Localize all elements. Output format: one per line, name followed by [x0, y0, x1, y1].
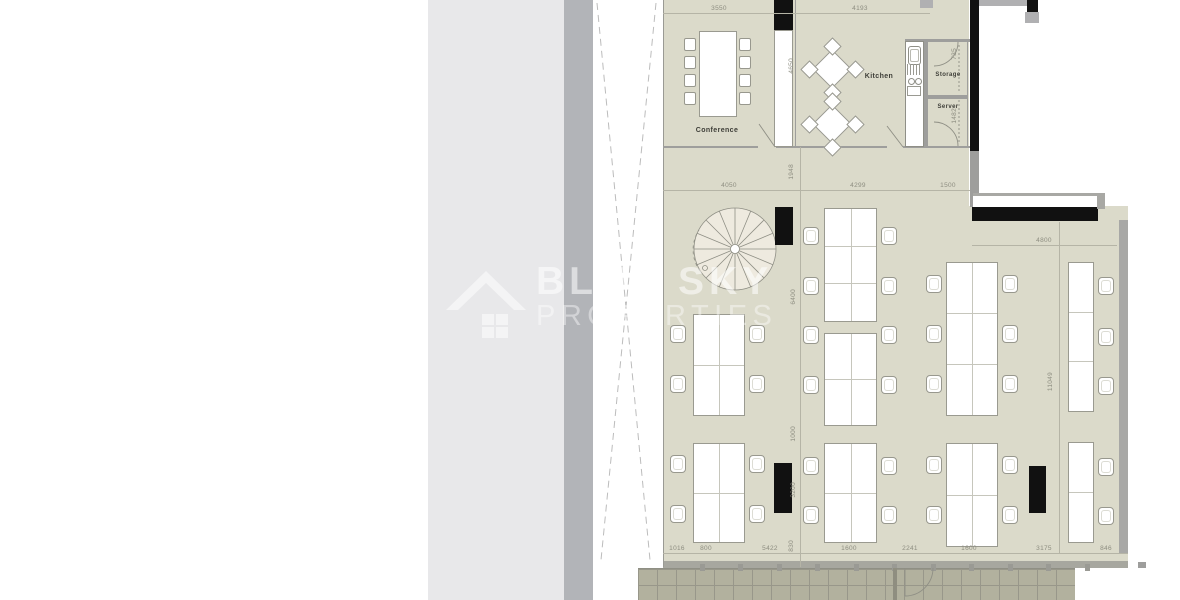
dimension-label: 1600 — [961, 545, 977, 552]
stove-burner-icon — [908, 78, 915, 85]
office-chair — [1098, 458, 1114, 476]
office-chair — [1098, 377, 1114, 395]
dimension-label: 11049 — [1047, 372, 1054, 391]
office-chair — [803, 457, 819, 475]
office-chair — [1002, 325, 1018, 343]
storage-room-label: Storage — [935, 72, 960, 78]
office-chair — [1098, 328, 1114, 346]
chair — [823, 37, 841, 55]
conference-kitchen-wall — [795, 0, 796, 147]
deck-door-arc — [905, 568, 933, 596]
dimension-label: 5422 — [762, 545, 778, 552]
stove-burner-icon — [915, 78, 922, 85]
dimension-line — [663, 553, 1128, 554]
dimension-label: 3175 — [1036, 545, 1052, 552]
conference-partition — [774, 30, 793, 147]
top-right-column — [1027, 0, 1038, 12]
dimension-line — [800, 147, 801, 567]
dimension-label: 3550 — [711, 5, 727, 12]
office-chair — [926, 506, 942, 524]
dashed-brace-lines — [597, 3, 656, 560]
office-chair — [1002, 275, 1018, 293]
dimension-label: 1948 — [788, 164, 795, 180]
office-chair — [749, 325, 765, 343]
dimension-label: 3200 — [790, 482, 797, 498]
dimension-label: 1016 — [669, 545, 685, 552]
office-chair — [749, 505, 765, 523]
office-chair — [1002, 456, 1018, 474]
office-chair — [803, 227, 819, 245]
dimension-label: 4299 — [850, 182, 866, 189]
office-chair — [926, 456, 942, 474]
office-chair — [1098, 507, 1114, 525]
office-chair — [670, 505, 686, 523]
top-right-cap — [1025, 12, 1039, 23]
desk — [824, 208, 877, 322]
desk — [1068, 442, 1094, 543]
structural-column — [1029, 466, 1046, 513]
office-chair — [1002, 375, 1018, 393]
conference-south-wall — [663, 146, 758, 148]
kitchen-table-group — [802, 39, 862, 99]
chair — [739, 74, 751, 87]
chair — [684, 56, 696, 69]
dimension-label: 846 — [1100, 545, 1112, 552]
office-chair — [881, 376, 897, 394]
dimension-line — [1059, 222, 1060, 553]
office-chair — [803, 376, 819, 394]
office-chair — [749, 455, 765, 473]
kitchen-table-group — [802, 94, 862, 154]
railing-end-cap — [1097, 193, 1105, 209]
chair — [739, 92, 751, 105]
kitchen-room-label: Kitchen — [865, 73, 893, 80]
rooms-east-line — [967, 41, 968, 147]
dimension-label: 735 — [951, 48, 958, 60]
dimension-label: 6400 — [790, 289, 797, 305]
chair — [684, 92, 696, 105]
dimension-label: 1482 — [951, 108, 958, 124]
conference-room-label: Conference — [696, 127, 739, 134]
chair — [846, 60, 864, 78]
dimension-label: 1600 — [841, 545, 857, 552]
chair — [823, 138, 841, 156]
desk — [693, 443, 745, 543]
desk — [946, 262, 998, 416]
corner-mark — [1138, 562, 1146, 568]
office-chair — [803, 326, 819, 344]
dimension-line — [972, 245, 1117, 246]
chair — [739, 56, 751, 69]
east-black-wall — [970, 0, 979, 151]
office-chair — [926, 375, 942, 393]
office-chair — [881, 457, 897, 475]
structural-column — [774, 0, 793, 30]
railing-glass-band — [973, 196, 1098, 207]
desk — [824, 443, 877, 543]
office-chair — [881, 227, 897, 245]
office-chair — [881, 506, 897, 524]
top-right-bar — [979, 0, 1027, 6]
office-chair — [926, 275, 942, 293]
chair — [684, 74, 696, 87]
server-room-label: Server — [937, 104, 958, 110]
wall-cap — [920, 0, 933, 8]
dimension-label: 1500 — [940, 182, 956, 189]
dimension-label: 4050 — [721, 182, 737, 189]
kitchen-door-leaf — [887, 126, 903, 147]
dimension-label: 830 — [788, 540, 795, 552]
office-chair — [670, 455, 686, 473]
plan-left-edge — [663, 0, 664, 567]
chair — [823, 92, 841, 110]
conference-table — [699, 31, 737, 117]
sink-basin-icon — [910, 49, 919, 62]
office-chair — [881, 326, 897, 344]
structural-column — [775, 207, 793, 245]
office-chair — [881, 277, 897, 295]
chair — [800, 115, 818, 133]
chair — [800, 60, 818, 78]
dimension-line — [663, 13, 930, 14]
server-door-arc — [934, 122, 958, 146]
office-chair — [803, 506, 819, 524]
right-edge-wall — [1119, 220, 1128, 554]
storage-server-wall — [928, 95, 967, 99]
chair — [739, 38, 751, 51]
conference-door-leaf — [759, 124, 775, 147]
dimension-label: 4193 — [852, 5, 868, 12]
stove-icon — [907, 86, 921, 96]
floor-plan-canvas: 3550 4193 4050 4299 1500 4800 1016 800 5… — [0, 0, 1180, 600]
chair — [846, 115, 864, 133]
office-chair — [670, 375, 686, 393]
railing-base-wall — [972, 207, 1098, 221]
dishwasher-icon — [907, 64, 922, 75]
dimension-label: 1000 — [790, 426, 797, 442]
desk — [693, 314, 745, 416]
office-chair — [926, 325, 942, 343]
office-chair — [803, 277, 819, 295]
chair — [684, 38, 696, 51]
desk — [824, 333, 877, 426]
office-chair — [670, 325, 686, 343]
office-chair — [1098, 277, 1114, 295]
office-chair — [1002, 506, 1018, 524]
dimension-label: 800 — [700, 545, 712, 552]
dimension-line — [663, 190, 970, 191]
desk — [946, 443, 998, 547]
dimension-label: 4650 — [788, 58, 795, 74]
dimension-label: 2241 — [902, 545, 918, 552]
office-chair — [749, 375, 765, 393]
dimension-label: 4800 — [1036, 237, 1052, 244]
spiral-staircase — [693, 208, 776, 290]
desk — [1068, 262, 1094, 412]
